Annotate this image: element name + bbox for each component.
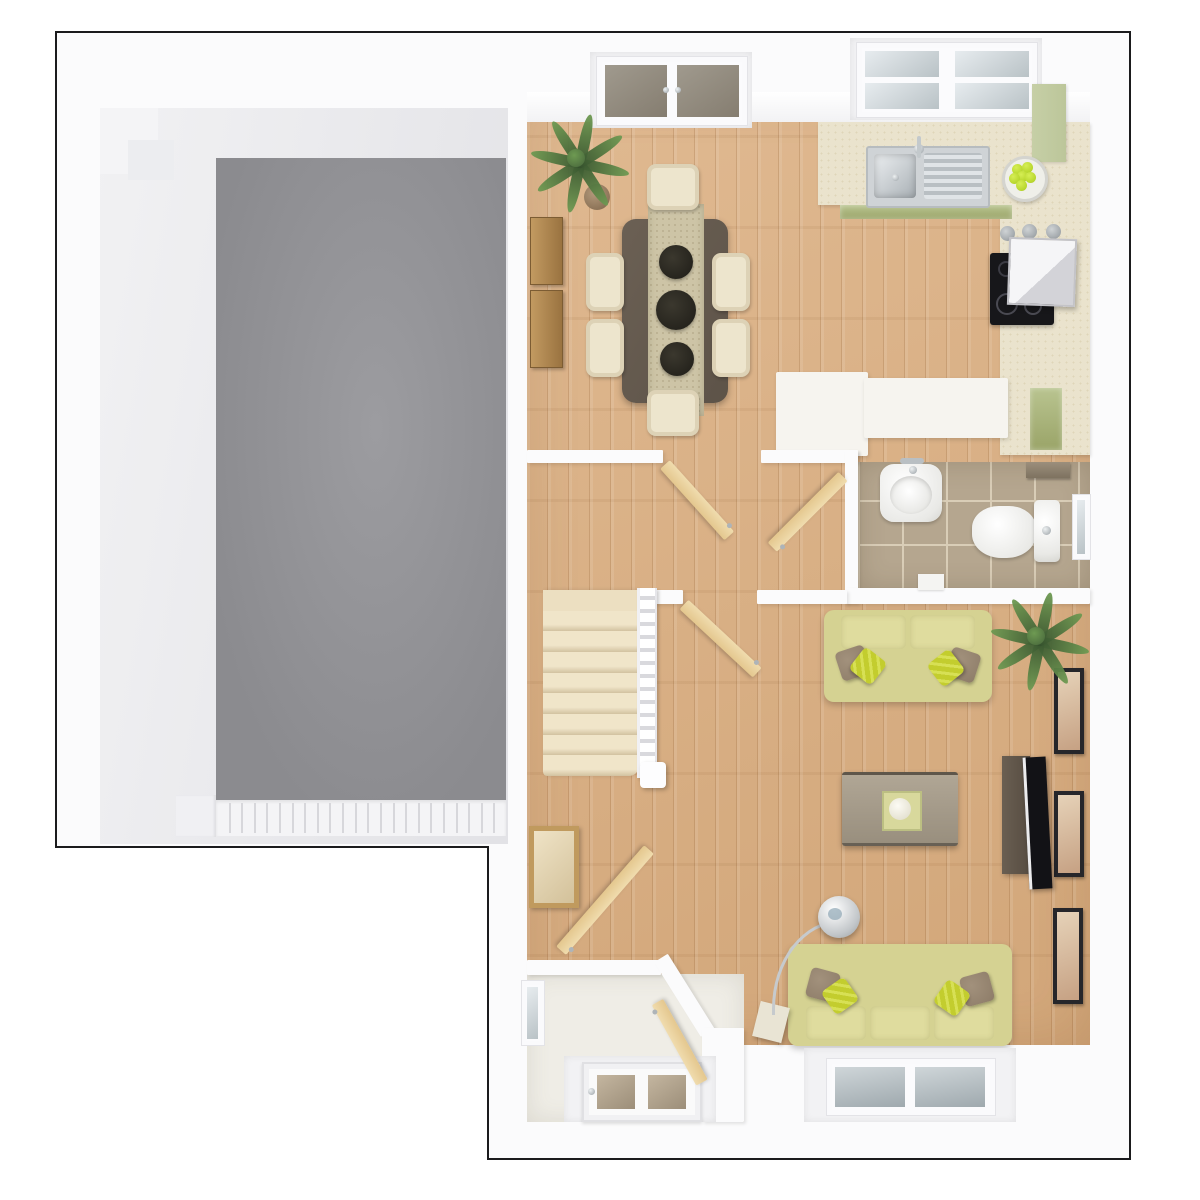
garage-door-rib <box>456 803 458 833</box>
spice-canister-3 <box>1046 224 1061 239</box>
palm-center <box>567 149 585 167</box>
stair-step <box>543 631 639 652</box>
palm-center <box>1027 627 1045 645</box>
garage-door-rib <box>418 803 420 833</box>
apple <box>1025 172 1036 183</box>
garage-door-rib <box>317 803 319 833</box>
french-door-glass-left <box>605 65 667 117</box>
lamp-shade-reflection <box>828 908 842 920</box>
stair-step <box>543 652 639 673</box>
kitchen-window-pane-2 <box>955 51 1029 77</box>
front-door-glass-2 <box>648 1075 686 1109</box>
garage-floor <box>216 158 506 800</box>
garage-door-rib <box>367 803 369 833</box>
french-door-glass-right <box>677 65 739 117</box>
table-plant-pot-3 <box>660 342 694 376</box>
toilet-flush-button <box>1042 526 1051 535</box>
floor-lamp-shade <box>818 896 860 938</box>
garage-door-rib <box>304 803 306 833</box>
garage-door-rib <box>405 803 407 833</box>
garage-door-rib <box>292 803 294 833</box>
basin-bowl <box>890 476 932 514</box>
garage-door-rib <box>468 803 470 833</box>
front-door-handle <box>588 1088 595 1095</box>
wall-shelf <box>530 217 563 285</box>
plan-outline-right <box>1129 31 1131 1160</box>
wc-left-wall <box>845 450 858 604</box>
kitchen-peninsula-2 <box>864 378 1008 438</box>
garage-wall-step-2 <box>128 140 174 180</box>
garage-door-rib <box>229 803 231 833</box>
plan-outline-top <box>55 31 1131 33</box>
sink-drainer <box>924 153 982 199</box>
front-door <box>582 1062 702 1122</box>
garage-door-rib <box>380 803 382 833</box>
kitchen-window-pane-4 <box>955 83 1029 109</box>
garage-door-rib <box>254 803 256 833</box>
wall-picture <box>1054 791 1084 877</box>
stair-step <box>543 735 639 756</box>
stair-balustrade <box>637 588 657 778</box>
living-window-pane-2 <box>915 1067 985 1107</box>
plan-outline-bottom <box>487 1158 1131 1160</box>
stair-step <box>543 590 639 611</box>
coffee-table <box>842 772 958 846</box>
garage-door-threshold <box>176 795 216 837</box>
garage-door-rib <box>355 803 357 833</box>
dining-chair <box>647 164 699 210</box>
kitchen-cabinet-front-lower <box>1030 388 1062 450</box>
living-window-pane-1 <box>835 1067 905 1107</box>
dining-chair <box>647 390 699 436</box>
wc-window <box>1072 494 1091 560</box>
basin-tap <box>900 458 924 464</box>
floor-plan <box>0 0 1200 1200</box>
stair-step <box>543 755 639 776</box>
garage-door-rib <box>493 803 495 833</box>
wc-toilet-bowl <box>972 506 1036 558</box>
sink-faucet-arm <box>917 136 921 158</box>
dining-hall-wall <box>527 450 663 463</box>
coffee-table-bowl <box>889 798 911 820</box>
front-door-glass-1 <box>597 1075 635 1109</box>
french-door-handle <box>663 87 669 93</box>
stair-step <box>543 714 639 735</box>
sofa-back-cushion-5 <box>934 1006 994 1040</box>
wc-window-pane <box>1077 500 1085 554</box>
garage-door <box>216 800 506 836</box>
garage-door-rib <box>393 803 395 833</box>
basin-tap-head <box>909 466 917 474</box>
wall-shelf-2 <box>530 290 563 368</box>
table-plant-2b <box>672 300 694 322</box>
hall-living-wall-2 <box>757 590 847 604</box>
garage-door-rib <box>241 803 243 833</box>
garage-door-rib <box>342 803 344 833</box>
dining-chair <box>712 319 750 377</box>
kitchen-sink-unit <box>866 146 990 208</box>
table-plant-pot <box>659 245 693 279</box>
wc-bottom-wall <box>845 588 1090 604</box>
apple <box>1016 180 1027 191</box>
living-window <box>826 1058 996 1116</box>
stair-step <box>543 673 639 694</box>
wc-mat <box>918 574 944 590</box>
kitchen-tall-cabinet <box>1032 84 1066 162</box>
wall-picture <box>1053 908 1083 1004</box>
extractor-hood <box>1007 237 1077 307</box>
kitchen-window-pane-1 <box>865 51 939 77</box>
garage-door-rib <box>430 803 432 833</box>
kitchen-peninsula <box>776 372 868 456</box>
table-plant-3 <box>665 347 688 370</box>
kitchen-window <box>856 42 1038 118</box>
dining-french-doors <box>596 56 748 126</box>
vestibule-top-wall <box>527 960 661 975</box>
sofa-back-cushion <box>841 615 906 649</box>
wall-picture <box>1054 668 1084 754</box>
staircase-steps <box>543 590 639 776</box>
fruit-bowl <box>1002 156 1048 202</box>
table-plant-pot-2 <box>656 290 696 330</box>
hall-mirror <box>529 826 579 908</box>
plan-outline-garage-left <box>55 31 57 848</box>
plan-outline-left-lower <box>487 846 489 1160</box>
dining-chair <box>712 253 750 311</box>
sofa-back-cushion-4 <box>870 1006 930 1040</box>
plan-outline-garage-bottom <box>55 846 489 848</box>
garage-door-rib <box>329 803 331 833</box>
garage-door-rib <box>481 803 483 833</box>
dining-chair <box>586 319 624 377</box>
table-plant <box>664 249 688 273</box>
vestibule-window <box>521 980 545 1046</box>
garage-door-rib <box>279 803 281 833</box>
garage-door-rib <box>266 803 268 833</box>
hall-wall-right <box>761 450 858 463</box>
wc-shelf <box>1026 462 1070 478</box>
garage-door-rib <box>443 803 445 833</box>
stair-newel-post <box>640 762 666 788</box>
sofa-arm-4 <box>996 944 1012 1046</box>
kitchen-window-pane-3 <box>865 83 939 109</box>
stair-step <box>543 611 639 632</box>
vestibule-window-pane <box>527 987 538 1039</box>
stair-step <box>543 693 639 714</box>
dining-chair <box>586 253 624 311</box>
sofa-back-cushion-2 <box>910 615 975 649</box>
sofa-two-seater <box>824 610 992 702</box>
french-door-handle-2 <box>675 87 681 93</box>
sink-drain <box>892 174 899 181</box>
